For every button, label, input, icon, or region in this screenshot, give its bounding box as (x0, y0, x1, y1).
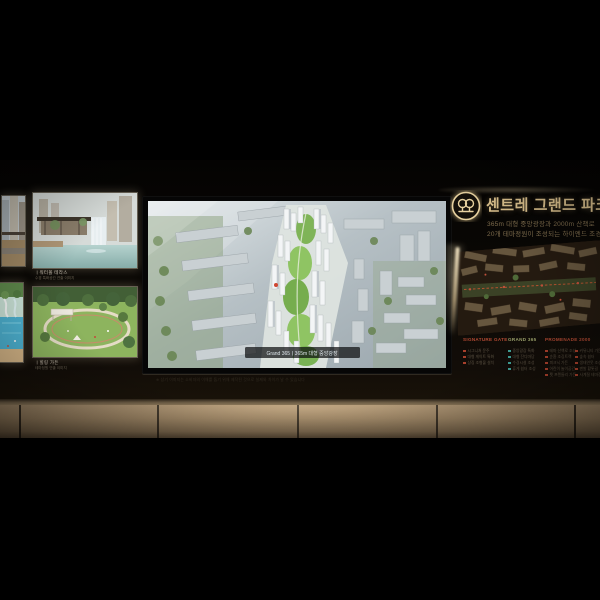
panel-subcaption: 수경 특화공간 연출 이미지 (35, 276, 74, 281)
spec-column-promenade-2000: PROMENADE 2000 테마 산책로 조성 순환 조깅트랙 피크닉 가든 … (545, 337, 600, 378)
column-header: SIGNATURE GATE (463, 337, 509, 342)
spec-sublist-right: 커뮤니티 가든 숲속 쉼터 생태연못 조성 맨발 황톳길 사계절 테마정원 (575, 348, 600, 378)
spec-item: 펫 프렌들리 가든 (545, 372, 572, 378)
bullet-icon (575, 362, 578, 365)
spec-item: 피크닉 가든 (545, 360, 572, 366)
brand-logo (450, 190, 482, 222)
bullet-icon (575, 368, 578, 371)
tv-disclaimer-text: ※ 상기 이미지는 소비자의 이해를 돕기 위해 제작된 것으로 실제와 차이가… (156, 377, 366, 383)
letterbox-bottom (0, 438, 600, 600)
spec-item: 사계절 테마정원 (575, 372, 600, 378)
site-plan-map (454, 240, 600, 336)
bullet-icon (463, 356, 466, 359)
bullet-icon (545, 350, 548, 353)
spec-columns: SIGNATURE GATE 시그니처 문주 대형 게이트 특화 상징 조형물 … (460, 337, 600, 389)
panel-caption: ㅣ힐링 가든 (35, 360, 59, 365)
kids-pool-render (0, 283, 23, 362)
cabinet-seam (157, 405, 159, 438)
bullet-icon (545, 362, 548, 365)
tv-display: Grand 365ㅣ365m 대형 중앙광장 (142, 196, 452, 374)
spec-column-grand-365: GRAND 365 중앙광장 특화 대형 잔디마당 수경시설 조성 휴게 쉼터 … (508, 337, 544, 372)
waterfall-terrace-render (33, 193, 137, 268)
bullet-icon (545, 374, 548, 377)
brand-title: 센트레 그랜드 파크 (486, 194, 600, 215)
tv-label: Grand 365ㅣ365m 대형 중앙광장 (266, 350, 338, 357)
spec-item: 어린이 놀이공간 (545, 366, 572, 372)
cabinet-seam (574, 405, 576, 438)
cabinet-seam (19, 405, 21, 438)
site-plan-panel (454, 240, 600, 336)
spec-column-signature-gate: SIGNATURE GATE 시그니처 문주 대형 게이트 특화 상징 조형물 … (463, 337, 509, 366)
bullet-icon (545, 356, 548, 359)
panel-caption: ㅣ워터폴 테라스 (35, 270, 68, 275)
cabinet-doors (0, 405, 600, 438)
photo-panel-partial-pool (0, 283, 23, 362)
bullet-icon (508, 362, 511, 365)
aerial-masterplan-render: Grand 365ㅣ365m 대형 중앙광장 (148, 201, 446, 368)
twin-trees-emblem-icon (450, 190, 482, 222)
brand-subtitle-line2: 20개 테마정원이 조성되는 하이엔드 조경 (487, 228, 600, 238)
spec-item: 커뮤니티 가든 (575, 348, 600, 354)
showroom-photo: ㅣ워터폴 테라스 수경 특화공간 연출 이미지 (0, 0, 600, 600)
spec-item: 휴게 쉼터 조성 (508, 366, 544, 372)
bullet-icon (508, 350, 511, 353)
bullet-icon (463, 350, 466, 353)
tv-screen-masterplan-video: Grand 365ㅣ365m 대형 중앙광장 (148, 201, 446, 368)
brand-subtitle-line1: 365m 대형 중앙광장과 2000m 산책로 (487, 218, 600, 228)
spec-item: 테마 산책로 조성 (545, 348, 572, 354)
healing-garden-render (33, 287, 137, 357)
bullet-icon (508, 368, 511, 371)
panel-subcaption: 테마정원 연출 이미지 (35, 366, 67, 371)
bullet-icon (575, 374, 578, 377)
spec-item: 맨발 황톳길 (575, 366, 600, 372)
photo-panel-healing-garden (33, 287, 137, 357)
photo-panel-partial-top (2, 196, 25, 266)
letterbox-top (0, 0, 600, 160)
bullet-icon (575, 356, 578, 359)
spec-sublist-left: 테마 산책로 조성 순환 조깅트랙 피크닉 가든 어린이 놀이공간 펫 프렌들리… (545, 348, 572, 378)
spec-item: 순환 조깅트랙 (545, 354, 572, 360)
spec-item: 생태연못 조성 (575, 360, 600, 366)
bullet-icon (545, 368, 548, 371)
cabinet-seam (436, 405, 438, 438)
bullet-icon (463, 362, 466, 365)
apartment-entry-render (2, 196, 25, 266)
cabinet-seam (297, 405, 299, 438)
spec-item: 상징 조형물 설치 (463, 360, 509, 366)
bullet-icon (508, 356, 511, 359)
photo-panel-waterfall-terrace (33, 193, 137, 268)
bullet-icon (575, 350, 578, 353)
